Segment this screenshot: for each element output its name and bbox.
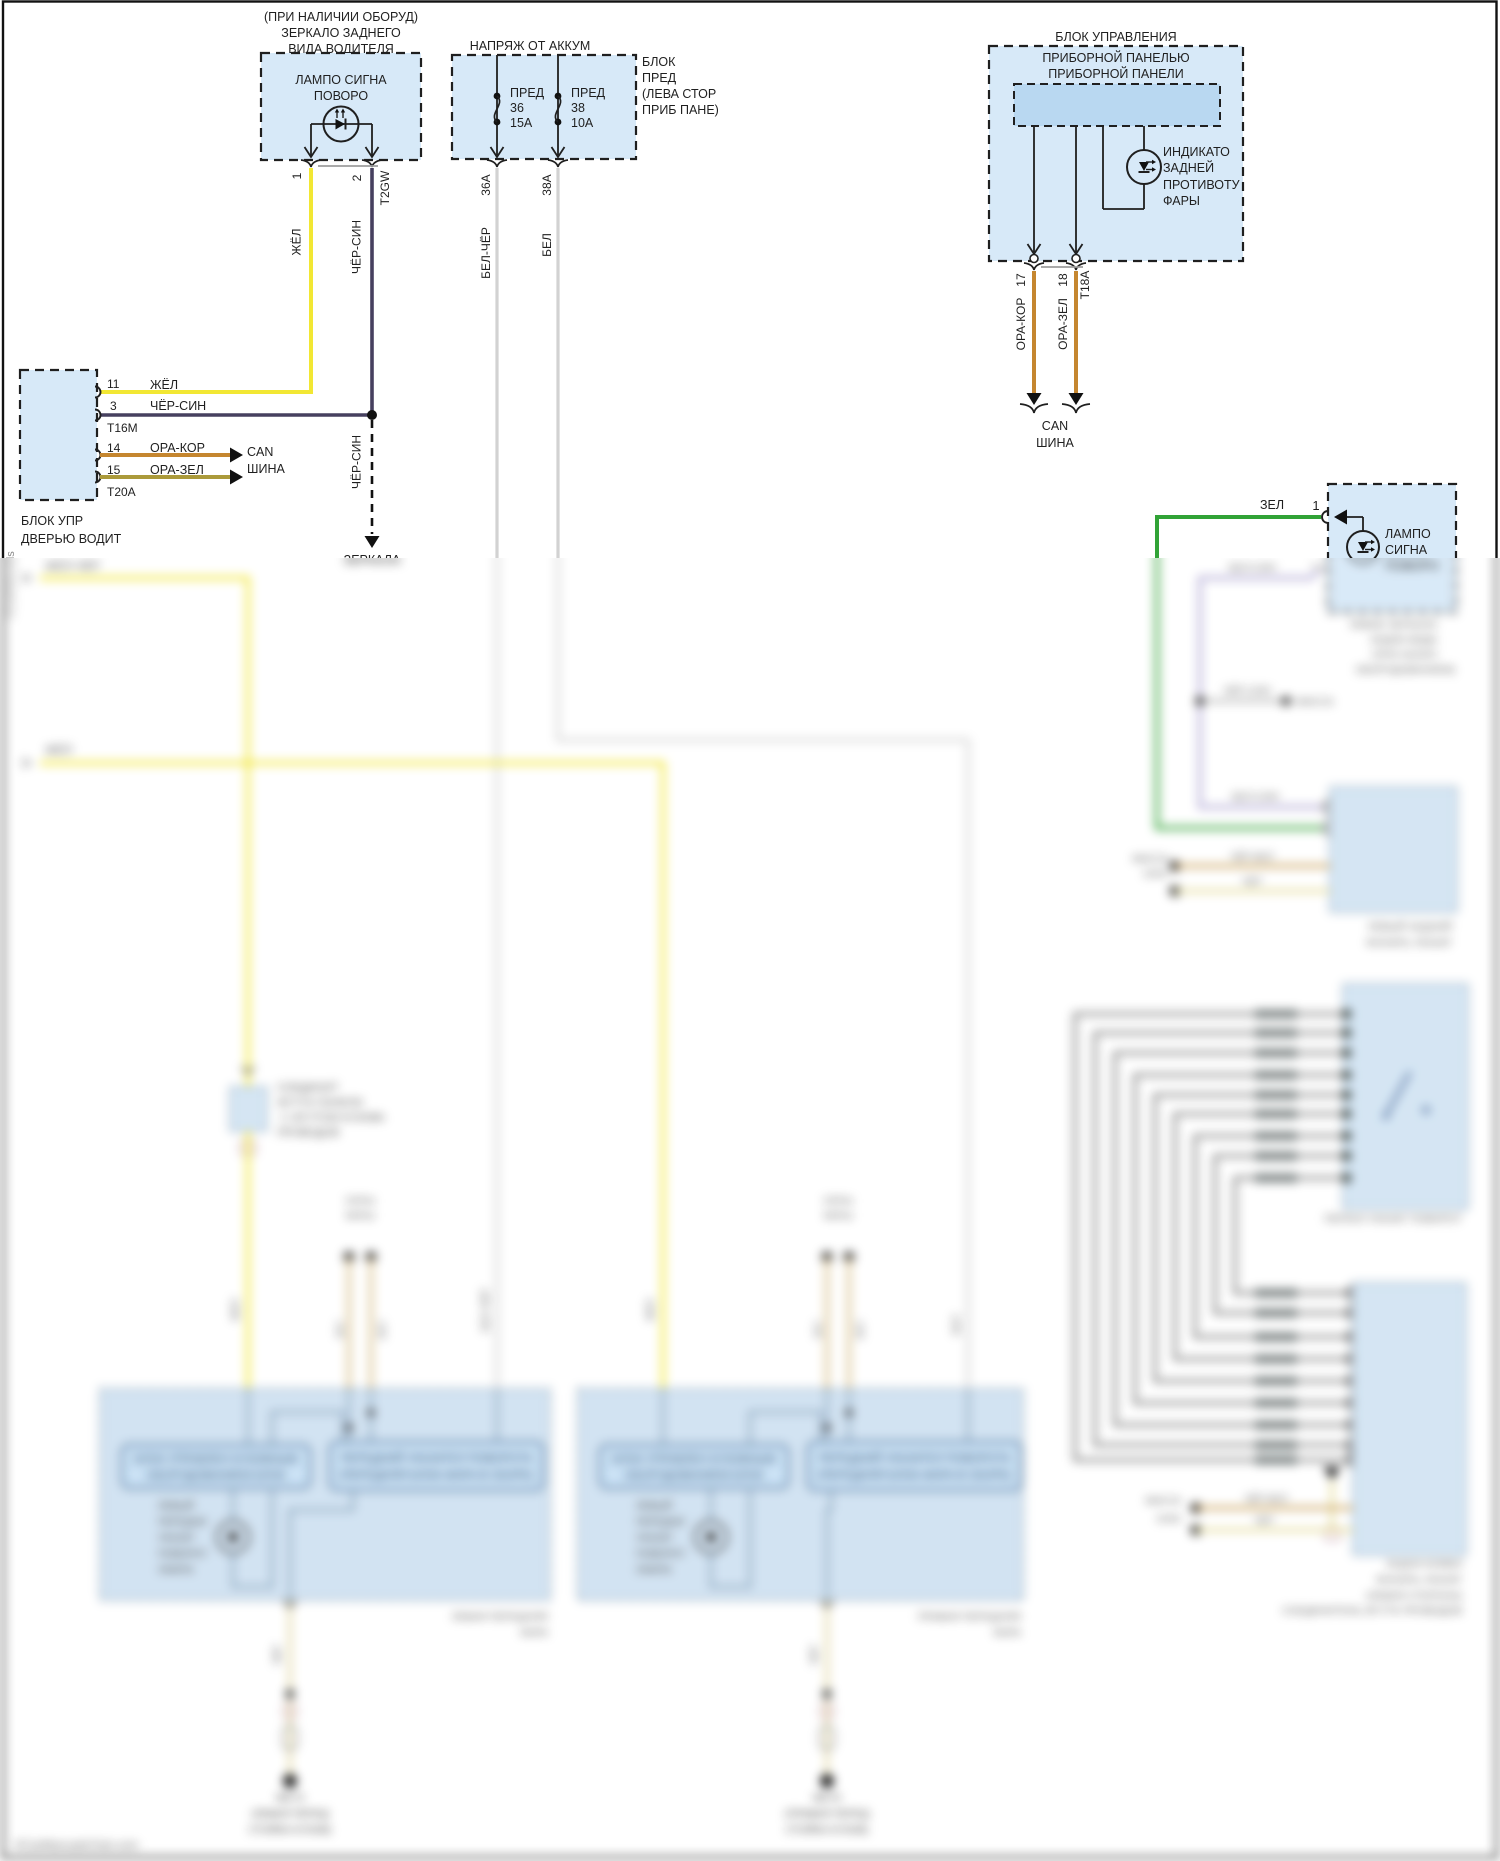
svg-text:ОРА-КОР: ОРА-КОР <box>1014 298 1028 351</box>
svg-text:(ПРИ НАЛИЧИИ ОБОРУД): (ПРИ НАЛИЧИИ ОБОРУД) <box>264 10 418 24</box>
svg-text:1: 1 <box>290 172 304 179</box>
svg-text:ЛАМПО СИГНА: ЛАМПО СИГНА <box>295 73 387 87</box>
svg-text:ЗАДНЕЙ: ЗАДНЕЙ <box>1163 160 1214 175</box>
svg-text:ЛАМПО: ЛАМПО <box>1385 527 1431 541</box>
svg-text:ЖЁЛ: ЖЁЛ <box>150 378 178 392</box>
svg-text:ОРА-ЗЕЛ: ОРА-ЗЕЛ <box>1056 298 1070 350</box>
svg-text:ШИНА: ШИНА <box>247 462 285 476</box>
svg-text:36А: 36А <box>479 174 493 195</box>
svg-text:СИГНА: СИГНА <box>1385 543 1428 557</box>
svg-text:38: 38 <box>571 101 585 115</box>
svg-text:БЛОК УПРАВЛЕНИЯ: БЛОК УПРАВЛЕНИЯ <box>1055 30 1176 44</box>
svg-text:ИНДИКАТО: ИНДИКАТО <box>1163 145 1230 159</box>
svg-text:ОРА-ЗЕЛ: ОРА-ЗЕЛ <box>150 463 204 477</box>
svg-text:ПРОТИВОТУ: ПРОТИВОТУ <box>1163 178 1240 192</box>
svg-text:ЧЁР-СИН: ЧЁР-СИН <box>350 220 364 274</box>
svg-text:18: 18 <box>1056 273 1070 287</box>
svg-text:ПРЕД: ПРЕД <box>510 86 545 100</box>
svg-text:T18A: T18A <box>1078 271 1092 300</box>
svg-text:ШИНА: ШИНА <box>1036 436 1074 450</box>
svg-text:ЗЕЛ: ЗЕЛ <box>1260 498 1284 512</box>
svg-text:T20A: T20A <box>107 485 136 499</box>
svg-text:ПРИБ ПАНЕ): ПРИБ ПАНЕ) <box>642 103 719 117</box>
svg-text:©CarManuals: ©CarManuals <box>5 551 17 558</box>
svg-text:ПОВОРО: ПОВОРО <box>314 89 368 103</box>
svg-text:15: 15 <box>107 463 121 477</box>
svg-text:НАПРЯЖ ОТ АККУМ: НАПРЯЖ ОТ АККУМ <box>470 39 591 53</box>
svg-text:ЖЁЛ: ЖЁЛ <box>290 229 304 256</box>
svg-text:ПРИБОРНОЙ ПАНЕЛЬЮ: ПРИБОРНОЙ ПАНЕЛЬЮ <box>1042 50 1190 65</box>
svg-text:ЧЁР-СИН: ЧЁР-СИН <box>350 435 364 489</box>
svg-text:ПРИБОРНОЙ ПАНЕЛИ: ПРИБОРНОЙ ПАНЕЛИ <box>1048 66 1184 81</box>
svg-text:ОРА-КОР: ОРА-КОР <box>150 441 205 455</box>
svg-text:1: 1 <box>1312 498 1319 513</box>
svg-text:ДВЕРЬЮ ВОДИТ: ДВЕРЬЮ ВОДИТ <box>21 532 122 546</box>
svg-text:ПРЕД: ПРЕД <box>571 86 606 100</box>
svg-text:17: 17 <box>1014 273 1028 287</box>
svg-text:БЛОК: БЛОК <box>642 55 676 69</box>
svg-text:БЛОК УПР: БЛОК УПР <box>21 514 83 528</box>
svg-text:(ЛЕВА СТОР: (ЛЕВА СТОР <box>642 87 716 101</box>
svg-text:36: 36 <box>510 101 524 115</box>
svg-text:15А: 15А <box>510 116 533 130</box>
svg-text:БЕЛ: БЕЛ <box>540 233 554 257</box>
svg-text:ФАРЫ: ФАРЫ <box>1163 194 1200 208</box>
svg-text:38А: 38А <box>540 174 554 195</box>
svg-text:ЗЕРКАЛО ЗАДНЕГО: ЗЕРКАЛО ЗАДНЕГО <box>281 26 401 40</box>
svg-text:T2GW: T2GW <box>378 170 392 205</box>
svg-text:2: 2 <box>350 174 364 181</box>
svg-text:10А: 10А <box>571 116 594 130</box>
svg-text:T16M: T16M <box>107 421 138 435</box>
svg-text:БЕЛ-ЧЁР: БЕЛ-ЧЁР <box>479 227 493 279</box>
svg-text:14: 14 <box>107 441 121 455</box>
svg-text:ПРЕД: ПРЕД <box>642 71 677 85</box>
svg-text:11: 11 <box>107 377 120 391</box>
svg-text:ЧЁР-СИН: ЧЁР-СИН <box>150 399 206 413</box>
svg-text:CAN: CAN <box>247 445 273 459</box>
svg-text:3: 3 <box>110 399 117 413</box>
svg-text:CAN: CAN <box>1042 419 1068 433</box>
